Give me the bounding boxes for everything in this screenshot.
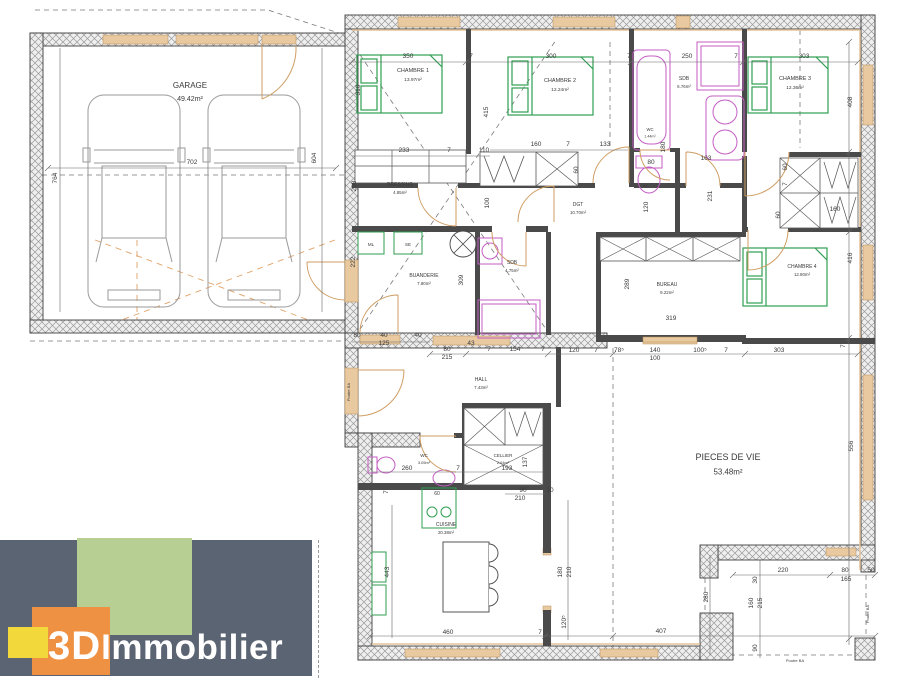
room-area: 4.75m² [505,268,519,273]
dim-label: 210 [515,495,526,502]
dim-label: 140 [650,347,661,354]
room-area: 9.22m² [660,290,674,295]
dim-label: 180 [557,566,564,577]
bed-chambre4 [743,248,827,306]
window [863,245,873,300]
dim-label: 7 [840,344,847,348]
dim-label: 60 [573,166,580,174]
bed-chambre2 [508,57,593,115]
dim-label: 604 [311,152,318,163]
dim-label: 60 [775,211,782,219]
garage-door-opening [176,35,258,44]
sheet-border-dashed [318,540,319,678]
dim-label: 415 [483,106,490,117]
closet-chambre2 [480,152,578,186]
logo-immobilier: Immobilier [101,628,283,667]
window [405,649,500,657]
room-name: CHAMBRE 1 [397,68,429,74]
room-name: SDB [679,76,690,82]
door-garage-buanderie [307,262,345,300]
dim-label: 7 [566,141,570,148]
logo: 3DImmobilier [0,540,320,678]
dim-label: 154 [510,346,521,353]
floor-plan-sheet: GARAGE49.42m²CHAMBRE 113.97m²CHAMBRE 212… [0,0,902,678]
door-buanderie [360,295,398,333]
front-door [358,370,404,416]
dim-label: 7 [469,53,473,60]
dim-label: 416 [847,252,854,263]
bed-chambre1 [357,55,442,113]
dim-label: 180 [660,141,667,152]
dim-label: 100⁵ [693,347,707,354]
beam-label: Poutre BA [786,658,805,663]
window [553,17,615,27]
dim-label: 165 [841,576,852,583]
logo-yellow-square [8,627,48,658]
logo-text: 3DImmobilier [48,624,283,669]
dim-label: 137 [522,456,529,467]
dim-label: 7 [594,347,598,354]
dim-label: 300 [546,53,557,60]
dim-label: 110 [479,147,490,154]
dim-label: 133 [600,141,611,148]
room-name: CHAMBRE 4 [787,264,816,270]
closet-chambre3-4 [780,158,858,228]
dim-label: 407 [656,628,667,635]
room-area: 12.80m² [794,272,811,277]
dim-label: 702 [187,159,198,166]
dim-label: 160 [830,206,841,213]
dim-label: 764 [52,172,59,183]
car [203,95,305,307]
window [398,17,460,27]
room-area: 49.42m² [177,96,203,103]
room-area: 7.43m² [474,385,488,390]
dim-label: 7 [782,182,789,186]
dim-label: 78⁵ [614,347,624,354]
dim-label: 222 [350,256,357,267]
dim-label: 120 [643,201,650,212]
dim-label: 50 [867,567,875,574]
room-name: PIECES DE VIE [695,452,760,462]
door-chambre2 [593,147,629,183]
dim-label: 80 [443,346,451,353]
dim-label: 80 [353,332,361,339]
closet-cellier [464,408,543,485]
window [863,65,873,125]
room-name: CELLIER [494,453,514,458]
dim-label: 443 [384,566,391,577]
room-name: WC [420,453,428,458]
room-area: 4.85m² [393,190,407,195]
dim-label: 7 [487,346,491,353]
door-dressing [418,188,456,226]
cars [83,95,305,307]
dim-label: 80 [841,567,849,574]
window [863,375,873,500]
room-area: 7.80m² [417,281,431,286]
door-wc [640,150,670,180]
room-area: 12.36m² [786,85,804,91]
dim-label: 160 [531,141,542,148]
dim-label: 7 [724,347,728,354]
room-area: 10.70m² [570,210,587,215]
washer-label: ML [368,242,375,247]
shower [478,300,540,338]
room-name: BUANDERIE [409,273,439,279]
dim-label: 460 [443,629,454,636]
dim-label: 7 [447,147,451,154]
driveway-markings [95,240,335,330]
room-area: 20.38m² [438,530,455,535]
dim-label: 556 [848,440,855,451]
dim-label: 303 [774,347,785,354]
dim-label: 231 [707,190,714,201]
dim-label: 163 [701,155,712,162]
water-heater [450,231,476,257]
room-name: SDB [507,260,518,266]
beam-label: Poutre BA [346,383,351,402]
closet-dgt [600,237,740,261]
dim-label: 7 [734,53,738,60]
room-area: 53.48m² [713,467,742,476]
dim-label: 30 [752,576,759,584]
dim-label: 40 [380,332,388,339]
logo-3d: 3D [48,624,101,668]
door-chambre4 [748,230,788,270]
window [600,649,658,657]
dim-label: 120 [569,347,580,354]
dim-label: 60 [434,491,440,497]
car [83,95,185,307]
dim-label: 350 [403,53,414,60]
dim-label: 233 [399,147,410,154]
room-area: 1.44m² [644,135,656,139]
room-name: CUISINE [436,522,457,528]
room-name: CHAMBRE 3 [779,76,811,82]
room-name: CHAMBRE 2 [544,78,576,84]
dim-label: 90 [752,644,759,652]
dim-label: 7 [643,184,650,188]
dim-label: 310 [355,84,362,95]
door-dgt [518,186,554,222]
dim-label: 408 [847,96,854,107]
dim-label: 289 [624,278,631,289]
garage-pedestrian-door [262,44,296,99]
dim-label: 43 [467,340,475,347]
dim-label: 90 [519,487,527,494]
dim-label: 100 [484,197,491,208]
dim-label: 250 [682,53,693,60]
dim-label: 319 [666,315,677,322]
garage-door-opening [103,35,168,44]
room-area: 3.05m² [418,460,431,465]
closets [355,150,858,485]
dim-label: 7 [383,490,390,494]
dim-label: 7 [456,465,460,472]
sanitary-fixtures [368,42,744,486]
dim-label: 125 [379,340,390,347]
dim-label: 10 [546,487,554,494]
dim-label: 80 [647,159,655,166]
dim-label: 280 [703,591,710,602]
room-area: 12.24m² [551,87,569,93]
double-sink [706,96,744,160]
shower [697,42,743,90]
room-name: DRESSING [387,182,413,188]
dim-label: 215 [757,597,764,608]
window [826,548,856,556]
dim-label: 7 [538,629,542,636]
dim-label: 309 [458,274,465,285]
room-area: 13.97m² [404,77,422,83]
dim-label: 100 [650,355,661,362]
room-name: HALL [475,377,488,383]
dim-label: 193 [502,465,513,472]
dryer-label: SE [405,242,411,247]
room-name: GARAGE [173,81,207,90]
dim-label: 220 [778,567,789,574]
room-name: BUREAU [657,282,678,288]
dim-label: 208 [351,180,358,191]
room-name: DGT [573,202,584,208]
room-name: WC [647,127,654,132]
closet-chambre1 [355,150,466,183]
dim-label: 215 [442,354,453,361]
room-area: 6.76m² [677,84,691,89]
dim-label: 60 [782,163,789,171]
dim-label: 160 [748,597,755,608]
kitchen-island [443,542,498,612]
dim-label: 260 [402,465,413,472]
dim-label: 7 [627,53,631,60]
dim-label: 40 [414,332,422,339]
kitchen-cabinet [372,585,386,615]
sink [478,238,502,264]
dim-label: 7 [541,346,545,353]
dim-label: 210 [566,566,573,577]
beam-label: Poutre BA [865,605,870,624]
dim-label: 120⁵ [561,615,568,629]
dim-label: 303 [799,53,810,60]
